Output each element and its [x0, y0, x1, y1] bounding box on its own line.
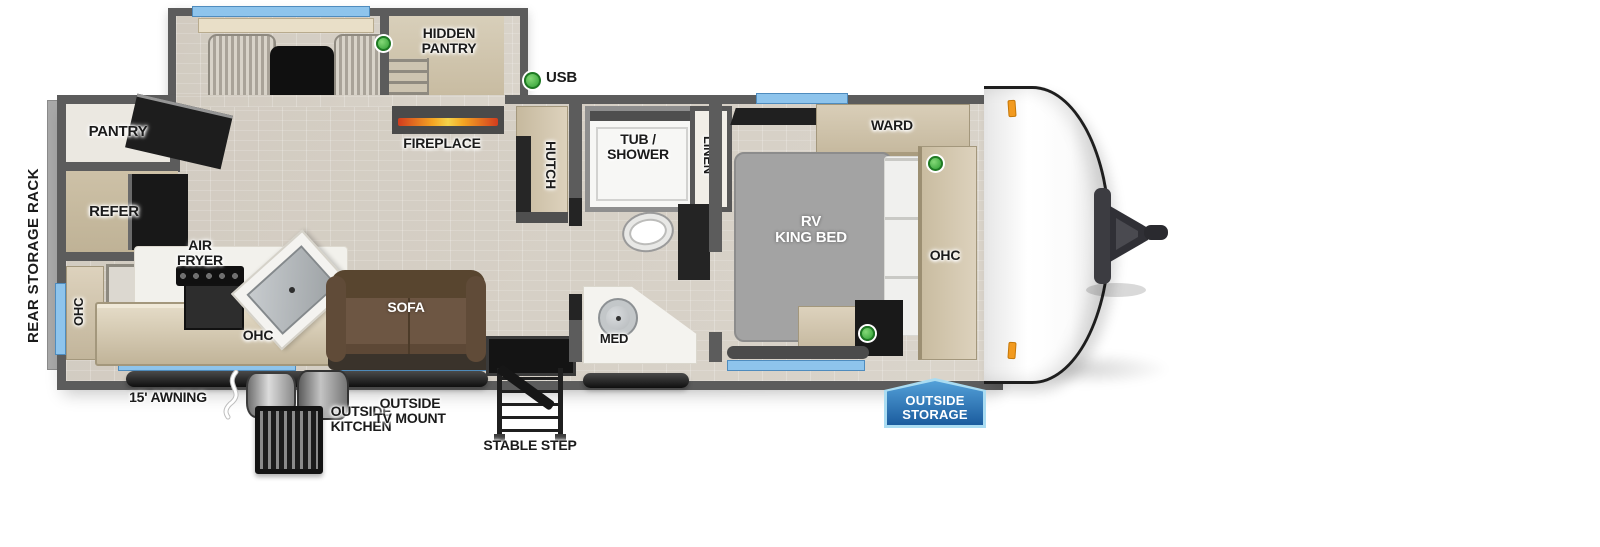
usb-legend-label: USB	[546, 70, 590, 86]
ohc-kitchen-label: OHC	[210, 328, 306, 343]
bedroom-bottom-window	[727, 360, 865, 371]
usb-dot-bedroom-top	[928, 156, 943, 171]
usb-legend-dot	[524, 72, 541, 89]
bed-wall-upper	[709, 104, 722, 252]
fireplace-flame	[398, 118, 498, 126]
stable-step-label: STABLE STEP	[476, 438, 584, 453]
awning-bar-front	[583, 373, 689, 388]
slideout-window	[192, 6, 370, 17]
slideout-divider-wall	[380, 16, 389, 106]
air-fryer-label: AIR FRYER	[162, 238, 238, 268]
hidden-pantry-label: HIDDEN PANTRY	[399, 26, 499, 56]
ohc-bedroom-label: OHC	[918, 248, 972, 263]
shower-door-track	[590, 111, 694, 121]
hitch-tongue	[1086, 178, 1172, 304]
med-label: MED	[585, 332, 643, 346]
pantry-wall-bottom	[66, 162, 180, 171]
marker-light-top	[1007, 100, 1016, 118]
king-bed-label: RV KING BED	[756, 214, 866, 246]
hutch-dark-front	[516, 136, 531, 214]
outside-storage-label: OUTSIDE STORAGE	[884, 394, 986, 422]
bedroom-top-window	[756, 93, 848, 104]
usb-dot-dinette	[376, 36, 391, 51]
hutch-base-shelf	[516, 212, 568, 223]
sink-drain	[288, 286, 296, 294]
ohc-left-label: OHC	[72, 282, 96, 342]
dinette-shelf	[198, 18, 374, 33]
stable-step	[494, 368, 566, 442]
outside-tv-mount-label: OUTSIDE TV MOUNT	[364, 396, 456, 426]
range-burners	[176, 266, 244, 286]
awning-label: 15' AWNING	[124, 390, 212, 405]
marker-light-bottom	[1007, 342, 1016, 360]
bed-wall-lower	[709, 332, 722, 362]
bedroom-bench	[727, 346, 869, 359]
sofa-label: SOFA	[375, 300, 437, 315]
tub-shower-label: TUB / SHOWER	[599, 132, 677, 162]
rear-wall-window	[55, 283, 66, 355]
med-sink-drain	[616, 316, 621, 321]
bath-door-jamb-lower	[569, 294, 582, 320]
fireplace-label: FIREPLACE	[382, 136, 502, 151]
refer-label: REFER	[68, 204, 160, 220]
bath-door-jamb-upper	[569, 198, 582, 226]
outside-kitchen-grill	[255, 406, 323, 474]
ward-label: WARD	[838, 118, 946, 133]
usb-dot-bedroom-bottom	[860, 326, 875, 341]
pantry-label: PANTRY	[70, 124, 166, 140]
floorplan-canvas: REAR STORAGE RACK DINETTE HIDDEN PANTRY …	[0, 0, 1600, 547]
rear-storage-rack-label: REAR STORAGE RACK	[26, 150, 48, 362]
fireplace-unit	[392, 106, 504, 134]
bath-door-leaf	[678, 204, 710, 280]
hutch-label: HUTCH	[536, 126, 558, 204]
sofa-armrest-right	[466, 276, 486, 362]
sofa-armrest-left	[326, 276, 346, 362]
